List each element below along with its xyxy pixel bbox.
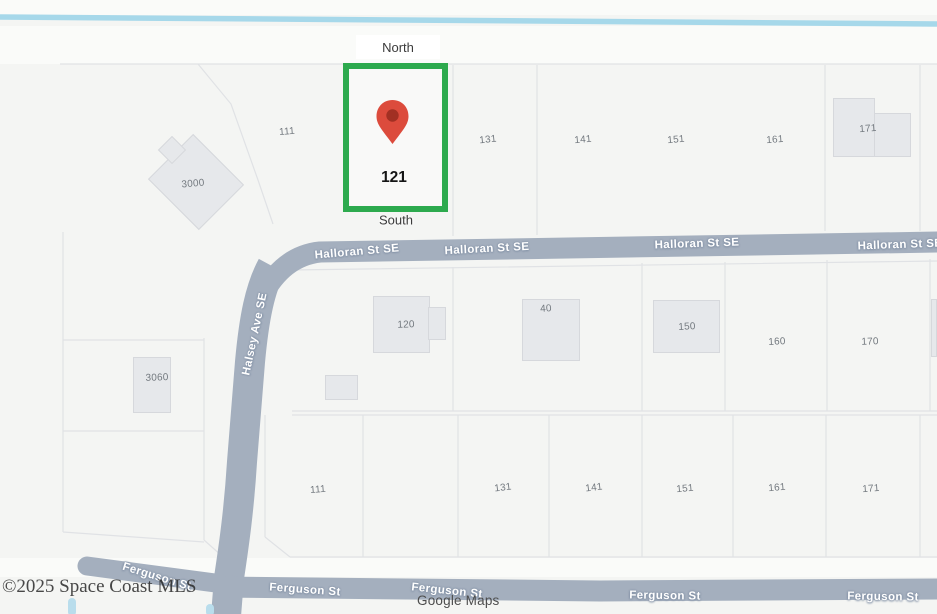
parcel-label: 150 <box>678 321 696 333</box>
parcel-label: 141 <box>574 134 592 146</box>
parcel-label: 40 <box>540 303 552 315</box>
parcel-label: 111 <box>279 126 296 138</box>
parcel-label: 170 <box>861 336 879 348</box>
water-stub-left <box>68 598 76 614</box>
building-171-wing <box>874 113 911 157</box>
parcel-label: 171 <box>859 123 877 135</box>
parcel-label: 161 <box>768 482 786 494</box>
building-shed <box>325 375 358 400</box>
parcel-label: 171 <box>862 483 880 495</box>
parcel-label: 3060 <box>145 372 168 384</box>
parcel-label: 3000 <box>181 178 205 191</box>
map-base-geometry <box>0 0 937 614</box>
parcel-label: 131 <box>494 481 513 494</box>
building-120-wing <box>428 307 446 340</box>
google-maps-watermark[interactable]: Google Maps <box>417 593 500 608</box>
parcel-label: 120 <box>397 319 415 331</box>
parcel-label: 161 <box>766 134 784 146</box>
parcel-label: 160 <box>768 336 786 348</box>
parcel-label: 151 <box>676 483 694 495</box>
waterway-line <box>0 17 937 24</box>
street-label-ferguson-5: Ferguson St <box>847 590 919 603</box>
building-edge-partial <box>931 299 937 357</box>
map-pin-center-dot <box>386 109 398 121</box>
map-canvas[interactable]: 111 131 141 151 161 171 120 40 150 160 1… <box>0 0 937 614</box>
building-3060 <box>133 357 171 413</box>
block-gap-strip-top <box>0 26 937 64</box>
parcel-label: 131 <box>479 134 497 147</box>
attribution-mls: ©2025 Space Coast MLS <box>2 576 196 598</box>
water-stub-right <box>206 604 214 614</box>
compass-south-label: South <box>379 213 413 228</box>
street-label-ferguson-4: Ferguson St <box>629 589 701 602</box>
parcel-label: 111 <box>310 484 327 496</box>
parcel-label: 151 <box>667 134 685 146</box>
subject-parcel-number: 121 <box>381 169 407 187</box>
top-margin-strip <box>0 0 937 15</box>
parcel-label: 141 <box>585 481 604 494</box>
north-label-box: North <box>356 35 440 59</box>
map-pin-icon[interactable] <box>374 99 411 145</box>
map-pin-body <box>377 100 409 144</box>
compass-north-label: North <box>382 40 414 55</box>
